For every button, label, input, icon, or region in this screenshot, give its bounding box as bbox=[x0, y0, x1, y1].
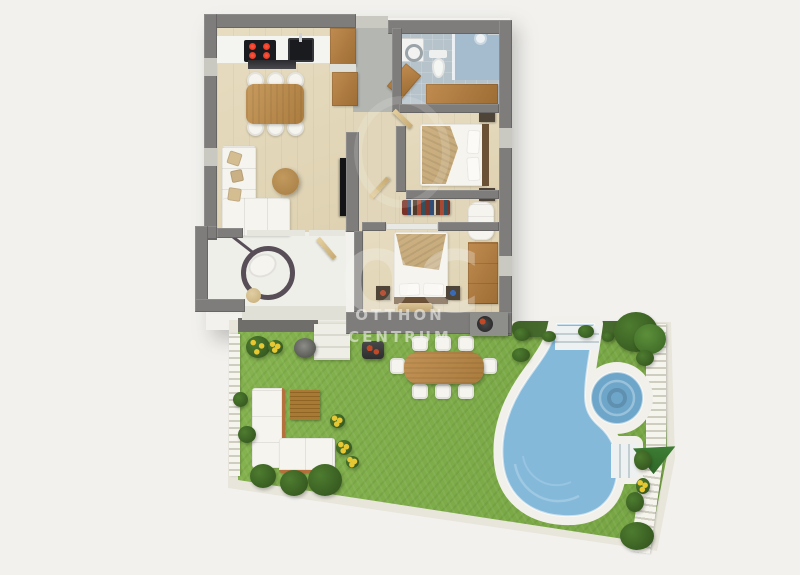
bush bbox=[280, 470, 308, 496]
grass-tuft bbox=[626, 492, 644, 512]
kitchen-sink bbox=[288, 38, 314, 62]
terrace-door-sill bbox=[247, 230, 305, 236]
wall-bedroom2-top-right bbox=[438, 222, 499, 231]
bath-vanity bbox=[426, 84, 498, 104]
bush bbox=[233, 392, 248, 407]
sofa-pillow bbox=[227, 187, 242, 202]
flower-bush bbox=[330, 414, 345, 428]
window-left bbox=[204, 148, 217, 166]
entry-door-gap bbox=[356, 16, 388, 28]
bed1-pillow bbox=[466, 157, 481, 182]
kitchen-island-strip bbox=[248, 60, 296, 69]
bush bbox=[308, 464, 342, 496]
outdoor-chair bbox=[390, 358, 405, 374]
wall-bedroom2-top-left bbox=[362, 222, 386, 231]
pouf bbox=[246, 288, 261, 303]
wall-top-left bbox=[204, 14, 356, 28]
dining-table bbox=[246, 84, 304, 124]
grass-tuft bbox=[514, 328, 530, 341]
burner bbox=[249, 43, 256, 50]
sofa-pillow bbox=[230, 169, 244, 183]
toilet-tank bbox=[429, 50, 447, 58]
wall-bedroom1-bottom bbox=[406, 190, 499, 199]
outdoor-chair bbox=[458, 336, 474, 351]
burner bbox=[249, 52, 256, 59]
wall-bedroom2-left bbox=[354, 231, 363, 312]
bed2-pillow bbox=[399, 282, 421, 296]
wall-bedroom1-left bbox=[396, 126, 406, 192]
wall-living-terrace bbox=[217, 228, 243, 238]
grass-tuft bbox=[542, 331, 556, 342]
garden-steps bbox=[314, 324, 350, 360]
wall-terrace-bottom bbox=[195, 299, 245, 312]
outdoor-chair bbox=[412, 384, 428, 399]
outdoor-dining-table bbox=[404, 352, 484, 384]
wall-tv bbox=[346, 132, 359, 232]
bush bbox=[636, 350, 654, 366]
grass-tuft bbox=[512, 348, 530, 362]
floor-plan-render: OC OTTHON CENTRUM bbox=[0, 0, 800, 575]
flower-bush bbox=[268, 340, 283, 354]
bush bbox=[250, 464, 276, 488]
bedroom2-sliding-door bbox=[386, 223, 438, 230]
terrace-edge bbox=[242, 306, 346, 320]
cooktop bbox=[244, 40, 276, 62]
window-left bbox=[204, 58, 217, 76]
faucet bbox=[299, 33, 302, 42]
kitchen-cabinet-lower bbox=[332, 72, 358, 106]
outdoor-chair bbox=[435, 384, 451, 399]
kitchen-cabinet-counter bbox=[330, 64, 356, 72]
flower-bush bbox=[636, 478, 650, 494]
bed1-headboard bbox=[482, 124, 489, 186]
window-right bbox=[499, 256, 512, 276]
grass-tuft bbox=[634, 450, 651, 470]
kitchen-cabinet-upper bbox=[330, 28, 356, 66]
wall-bath-bottom bbox=[399, 104, 499, 113]
bed1-pillow bbox=[466, 130, 481, 155]
shower-head bbox=[476, 34, 485, 43]
burner bbox=[263, 52, 270, 59]
wall-hall-bath bbox=[392, 28, 402, 112]
outdoor-chair bbox=[458, 384, 474, 399]
burner bbox=[263, 43, 270, 50]
bed2-bench bbox=[398, 303, 432, 311]
wardrobe bbox=[468, 242, 498, 304]
hallway-bookshelf bbox=[402, 200, 450, 215]
grass-tuft bbox=[602, 332, 614, 342]
wall-left-upper bbox=[204, 14, 217, 240]
washer-drum bbox=[405, 44, 423, 62]
chaise-lounge bbox=[468, 202, 494, 240]
flower-bush bbox=[336, 440, 352, 455]
bush bbox=[620, 522, 654, 550]
coffee-table bbox=[272, 168, 299, 195]
bed2-throw bbox=[396, 234, 446, 270]
flower-bush bbox=[346, 456, 359, 468]
nightstand-frame bbox=[376, 286, 390, 300]
bed2-pillow bbox=[423, 282, 445, 296]
wall-top-right bbox=[388, 20, 512, 34]
flower-bush bbox=[246, 336, 270, 358]
house-base-strip bbox=[238, 318, 318, 332]
tree-canopy bbox=[634, 324, 666, 354]
bbq-grill bbox=[362, 341, 384, 359]
window-right bbox=[499, 128, 512, 148]
fire-pit bbox=[294, 338, 316, 358]
wall-right bbox=[499, 20, 512, 336]
wood-deck-square bbox=[290, 390, 320, 420]
outdoor-chair bbox=[412, 336, 428, 351]
shower-glass bbox=[452, 28, 455, 80]
nightstand-frame bbox=[446, 286, 460, 300]
terrace-door-sill bbox=[309, 230, 345, 236]
grass-tuft bbox=[578, 325, 594, 338]
outdoor-grill bbox=[477, 316, 493, 332]
outdoor-chair bbox=[435, 336, 451, 351]
bush bbox=[238, 426, 256, 443]
